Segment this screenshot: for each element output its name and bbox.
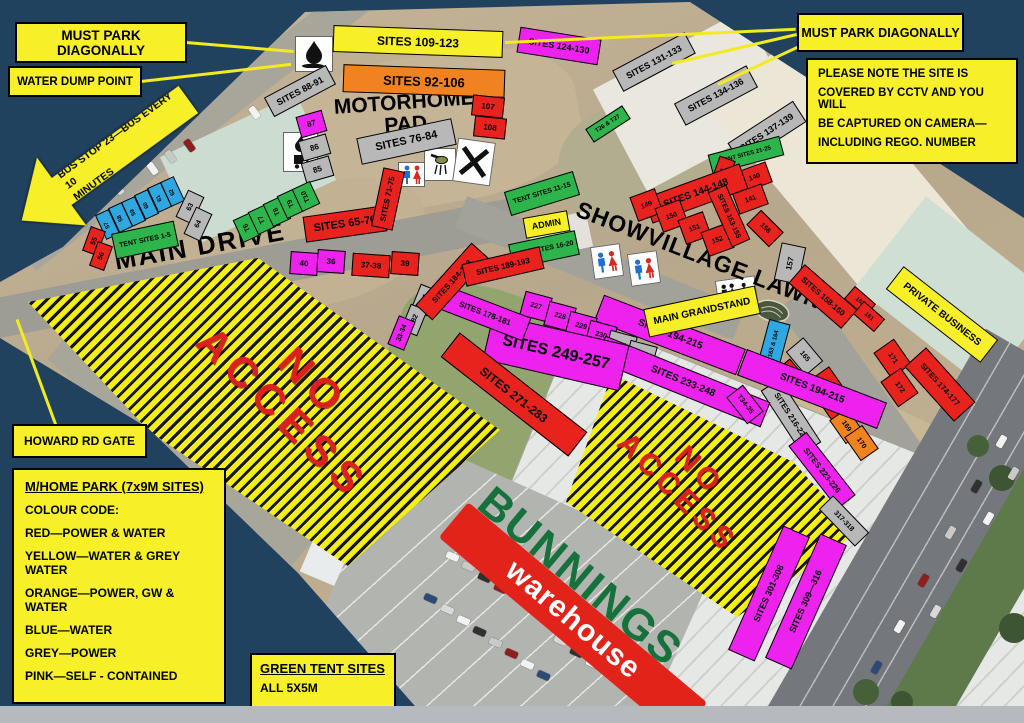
legend-entry: RED—POWER & WATER (25, 526, 213, 540)
water-dump-icon (295, 36, 333, 72)
legend-entry: PINK—SELF - CONTAINED (25, 669, 213, 683)
cctv-notice: PLEASE NOTE THE SITE ISCOVERED BY CCTV A… (806, 58, 1018, 164)
colour-code-legend: M/HOME PARK (7x9M SITES) COLOUR CODE: RE… (12, 468, 226, 704)
water-dump-callout: WATER DUMP POINT (8, 66, 142, 97)
legend-subtitle: COLOUR CODE: (25, 503, 213, 517)
cctv-notice-line: COVERED BY CCTV AND YOU WILL (818, 87, 1006, 112)
shower-icon (424, 148, 456, 181)
site-box-107: 107 (471, 94, 505, 118)
photo-bottom-border (0, 706, 1024, 723)
legend-entry: ORANGE—POWER, GW & WATER (25, 586, 213, 614)
decor-shape (999, 613, 1024, 643)
howard-rd-gate-callout: HOWARD RD GATE (12, 424, 147, 458)
must-park-right-callout: MUST PARK DIAGONALLY (797, 13, 964, 52)
legend-entry: YELLOW—WATER & GREY WATER (25, 549, 213, 577)
no-food-icon (452, 138, 496, 187)
toilets-icon-lawn-east (627, 250, 661, 287)
green-tent-sites-note: GREEN TENT SITES ALL 5X5M (250, 653, 396, 708)
site-box-40: 40 (289, 251, 319, 276)
site-box-37-38: 37-38 (351, 252, 391, 278)
site-box-39: 39 (390, 251, 420, 276)
decor-shape (967, 435, 989, 457)
tent-note-line2: ALL 5X5M (260, 681, 386, 695)
legend-entry: BLUE—WATER (25, 623, 213, 637)
legend-title: M/HOME PARK (7x9M SITES) (25, 479, 213, 494)
site-box-36: 36 (316, 249, 346, 274)
toilets-icon-lawn-west (590, 243, 624, 280)
site-box-sites-92-106: SITES 92-106 (343, 64, 506, 98)
site-box-sites-109-123: SITES 109-123 (333, 25, 504, 58)
cctv-notice-line: PLEASE NOTE THE SITE IS (818, 68, 968, 81)
tent-note-line1: GREEN TENT SITES (260, 661, 386, 676)
decor-shape (853, 679, 879, 705)
showground-site-map: BUNNINGS warehouse NO ACCESS NO ACCESS S… (0, 0, 1024, 723)
must-park-left-callout: MUST PARK DIAGONALLY (15, 22, 187, 63)
legend-entry: GREY—POWER (25, 646, 213, 660)
site-box-108: 108 (473, 115, 507, 139)
cctv-notice-line: BE CAPTURED ON CAMERA— (818, 118, 987, 131)
cctv-notice-line: INCLUDING REGO. NUMBER (818, 137, 976, 150)
